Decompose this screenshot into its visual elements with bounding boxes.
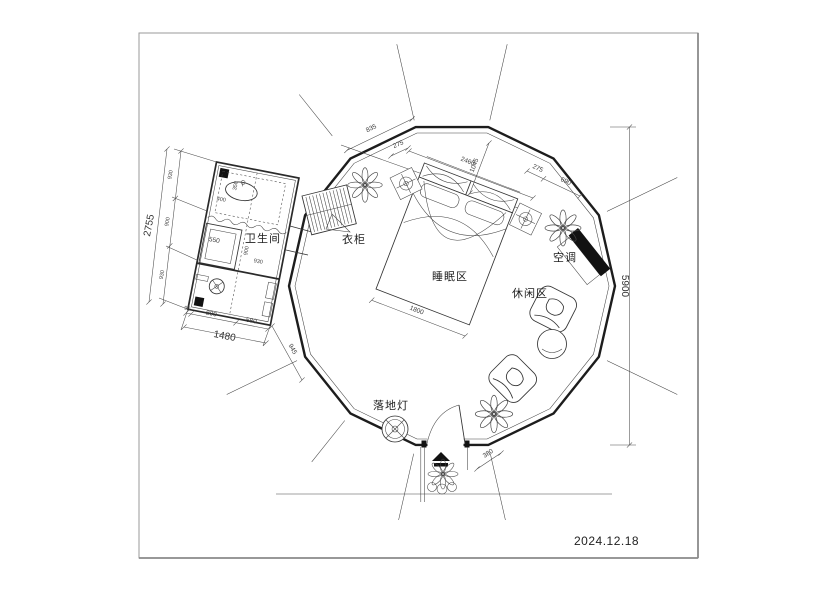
entry-arrow <box>432 452 450 461</box>
label-air-conditioner: 空调 <box>553 250 577 264</box>
dim-left-seg-3: 930 <box>159 270 167 280</box>
floor-plan-page: 930 900 930 2755 90 800 580 1480 945 550… <box>0 0 837 592</box>
entrance-pot-2 <box>437 484 447 494</box>
dim-bottom-overall: 1480 <box>213 329 237 344</box>
label-sleeping-area: 睡眠区 <box>432 270 468 283</box>
door-post-left <box>422 441 427 448</box>
label-leisure-area: 休闲区 <box>512 286 548 300</box>
entry-arrow-bar <box>434 463 448 467</box>
column-top <box>219 168 230 179</box>
dim-left-seg-1: 930 <box>167 170 175 180</box>
label-wardrobe: 衣柜 <box>342 232 366 246</box>
floor-lamp <box>382 416 408 442</box>
column-bottom <box>194 296 205 307</box>
bathroom <box>188 162 299 325</box>
dim-bath-diag: 945 <box>287 343 299 356</box>
drawing-date: 2024.12.18 <box>574 534 639 548</box>
dim-left-seg-2: 900 <box>164 217 172 227</box>
floor-plan-svg: 930 900 930 2755 90 800 580 1480 945 550… <box>0 0 837 592</box>
entrance-pot-3 <box>448 483 457 492</box>
dim-bottom-seg-2: 580 <box>245 317 257 326</box>
dim-door-offset: 380 <box>482 448 495 460</box>
door-post-right <box>465 441 470 448</box>
dim-top-edge: 835 <box>365 123 378 134</box>
label-bathroom: 卫生间 <box>245 231 281 245</box>
dim-bottom-gap: 90 <box>184 305 191 312</box>
dim-height-overall: 5900 <box>619 275 630 298</box>
coffee-table <box>538 330 567 359</box>
dim-left-overall: 2755 <box>142 213 157 237</box>
label-floor-lamp: 落地灯 <box>373 399 409 412</box>
